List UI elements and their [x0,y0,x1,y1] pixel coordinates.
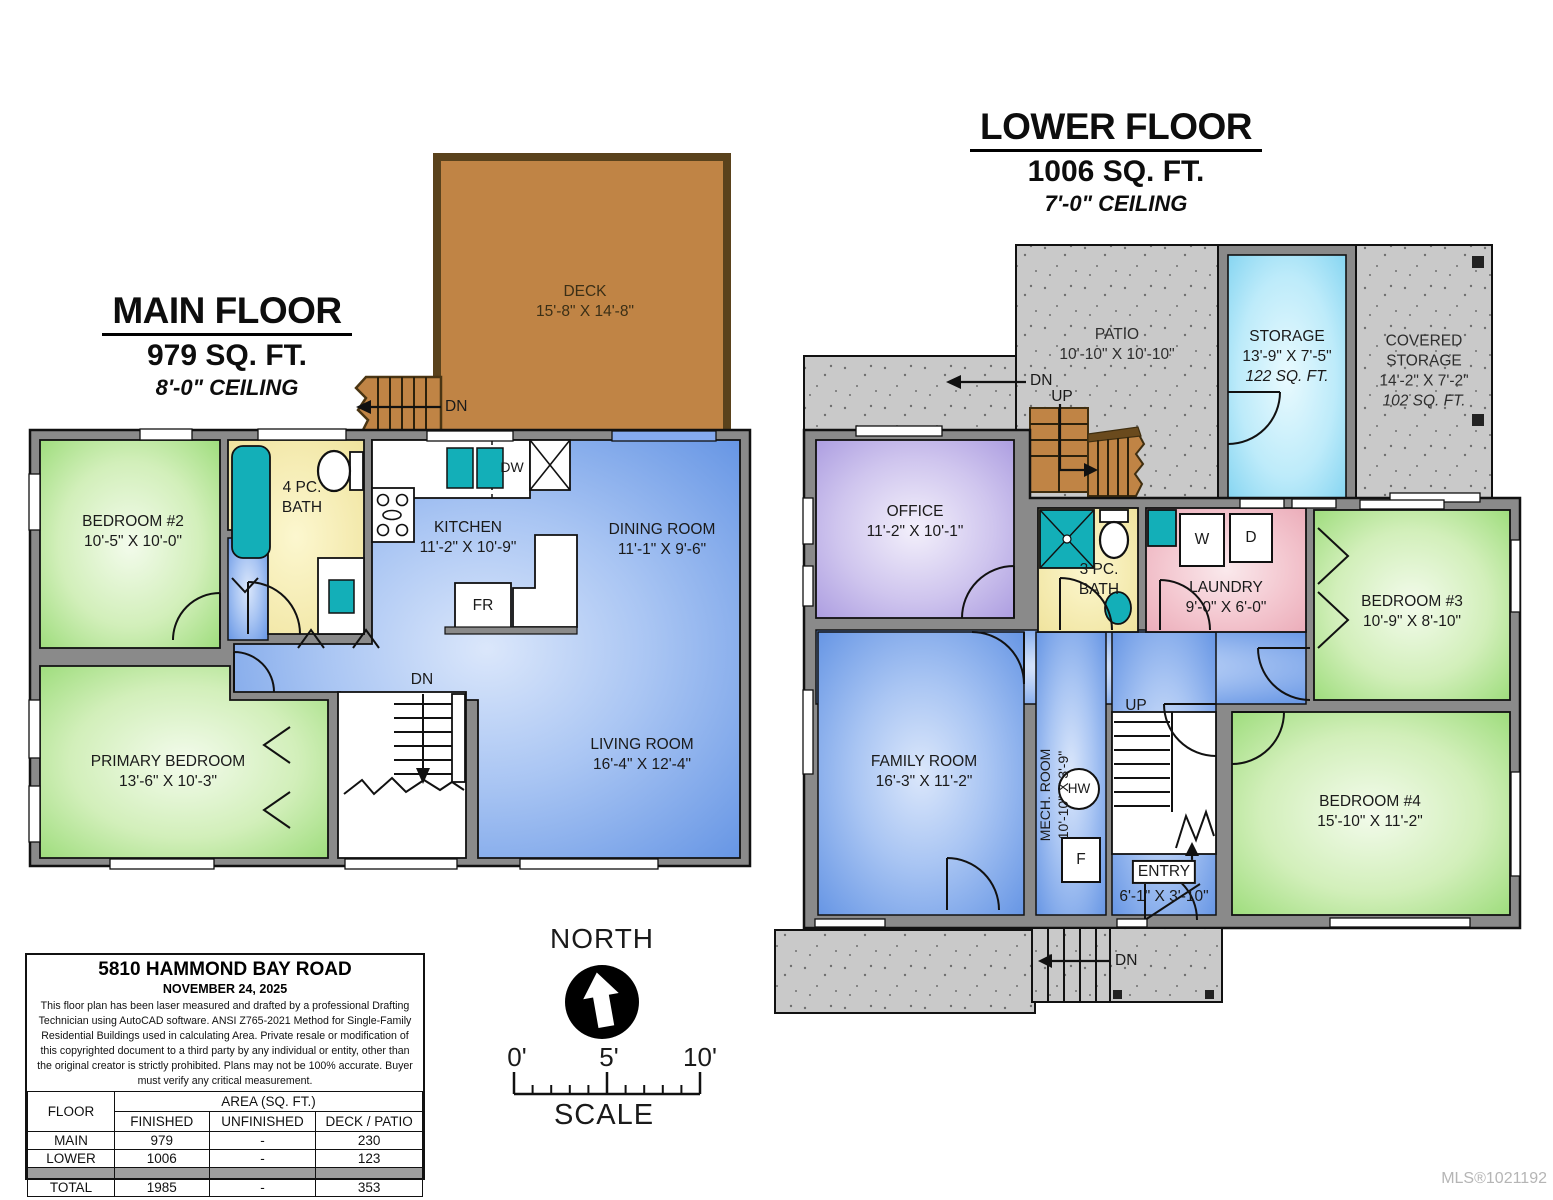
table-cell [114,1168,209,1179]
floor-plan-page: MAIN FLOOR 979 SQ. FT. 8'-0" CEILING LOW… [0,0,1553,1200]
scale-tick-5: 5' [599,1041,618,1075]
table-cell: 1006 [114,1150,209,1168]
lower-floor-ceiling: 7'-0" CEILING [966,191,1266,217]
dishwasher-label: DW [500,458,523,476]
hot-water-label: HW [1068,780,1091,798]
post-icon [1472,256,1484,268]
living-room-label: LIVING ROOM16'-4" X 12'-4" [590,735,693,775]
deck-patio-header: DECK / PATIO [316,1112,423,1132]
table-header-row: FLOOR AREA (SQ. FT.) [28,1092,423,1112]
scale-bar [514,1072,700,1094]
vanity-sink-icon [318,558,364,634]
north-label: NORTH [550,921,654,957]
address-title: 5810 HAMMOND BAY ROAD [27,959,423,981]
mls-watermark: MLS®1021192 [1441,1170,1547,1188]
table-cell: - [209,1179,316,1197]
bottom-dn-label: DN [1115,951,1137,971]
unfinished-header: UNFINISHED [209,1112,316,1132]
table-row: MAIN 979 - 230 [28,1132,423,1150]
entry-label: ENTRY [1132,860,1196,884]
post-icon [1113,990,1122,999]
patio-up-label: UP [1051,387,1073,407]
table-cell [28,1168,115,1179]
main-stairs-icon [338,692,466,858]
primary-bedroom-label: PRIMARY BEDROOM13'-6" X 10'-3" [91,752,245,792]
lower-floor-area: 1006 SQ. FT. [966,155,1266,189]
laundry-label: LAUNDRY9'-0" X 6'-0" [1186,578,1267,618]
toilet-icon [318,451,363,491]
area-table: FLOOR AREA (SQ. FT.) FINISHED UNFINISHED… [27,1091,423,1197]
mech-room-label: MECH. ROOM10'-10" X 3'-9" [1036,749,1072,842]
disclaimer-text: This floor plan has been laser measured … [27,996,423,1091]
info-box: 5810 HAMMOND BAY ROAD NOVEMBER 24, 2025 … [25,953,425,1180]
lower-floor-title-name: LOWER FLOOR [970,106,1262,152]
bedroom2-label: BEDROOM #210'-5" X 10'-0" [82,512,184,552]
bedroom3-label: BEDROOM #310'-9" X 8'-10" [1361,592,1463,632]
table-cell: 123 [316,1150,423,1168]
bedroom4-label: BEDROOM #415'-10" X 11'-2" [1317,792,1422,832]
north-compass-icon [565,965,639,1039]
kitchen-label: KITCHEN11'-2" X 10'-9" [420,518,517,558]
table-cell: MAIN [28,1132,115,1150]
area-header: AREA (SQ. FT.) [114,1092,422,1112]
scale-label: SCALE [554,1097,654,1135]
kitchen-sink2-icon [477,448,503,488]
lower-stairs-icon [1112,712,1216,880]
family-room-label: FAMILY ROOM16'-3" X 11'-2" [871,752,977,792]
table-row: LOWER 1006 - 123 [28,1150,423,1168]
patio-dn-label: DN [1030,371,1052,391]
table-cell: 230 [316,1132,423,1150]
counter-edge [445,627,577,634]
laundry-sink-icon [1148,510,1176,546]
finished-header: FINISHED [114,1112,209,1132]
date-label: NOVEMBER 24, 2025 [27,982,423,996]
stove-icon [372,488,414,542]
bottom-pad-area [775,930,1035,1013]
dining-label: DINING ROOM11'-1" X 9'-6" [609,520,716,560]
deck-dn-label: DN [445,397,467,417]
table-cell [316,1168,423,1179]
walkway-area [804,356,1016,432]
washer-label: W [1195,530,1210,550]
bathtub-icon [232,446,270,558]
main-stairs-dn-label: DN [411,670,433,690]
table-cell: 353 [316,1179,423,1197]
main-floor-title-name: MAIN FLOOR [102,290,351,336]
post-icon [1205,990,1214,999]
table-cell: 979 [114,1132,209,1150]
table-row-total: TOTAL 1985 - 353 [28,1179,423,1197]
floor-header: FLOOR [28,1092,115,1132]
storage-label: STORAGE13'-9" X 7'-5" 122 SQ. FT. [1242,327,1331,387]
lower-bath-label: 3 PC.BATH [1079,560,1119,600]
table-separator-row [28,1168,423,1179]
covered-storage-label: COVERED STORAGE 14'-2" X 7'-2" 102 SQ. F… [1360,332,1488,413]
lower-floor-title: LOWER FLOOR 1006 SQ. FT. 7'-0" CEILING [966,106,1266,217]
lower-toilet-icon [1100,510,1128,558]
main-floor-title: MAIN FLOOR 979 SQ. FT. 8'-0" CEILING [77,290,377,401]
table-cell [209,1168,316,1179]
table-cell: TOTAL [28,1179,115,1197]
scale-tick-10: 10' [683,1041,717,1075]
scale-tick-0: 0' [507,1041,526,1075]
table-cell: LOWER [28,1150,115,1168]
deck-label: DECK15'-8" X 14'-8" [536,282,634,322]
post-icon [1472,414,1484,426]
main-bath-label: 4 PC.BATH [282,478,322,518]
patio-label: PATIO10'-10" X 10'-10" [1059,325,1174,365]
office-label: OFFICE11'-2" X 10'-1" [867,502,964,542]
furnace-label: F [1076,850,1085,870]
dryer-label: D [1245,528,1256,548]
table-cell: - [209,1132,316,1150]
main-floor-ceiling: 8'-0" CEILING [77,375,377,401]
fridge-label: FR [473,596,494,616]
table-cell: - [209,1150,316,1168]
kitchen-sink-icon [447,448,473,488]
lower-stairs-up-label: UP [1125,696,1147,716]
table-cell: 1985 [114,1179,209,1197]
main-floor-area: 979 SQ. FT. [77,339,377,373]
bottom-stairs-icon [1032,928,1110,1002]
entry-dims-label: 6'-1" X 3'-10" [1119,887,1208,907]
